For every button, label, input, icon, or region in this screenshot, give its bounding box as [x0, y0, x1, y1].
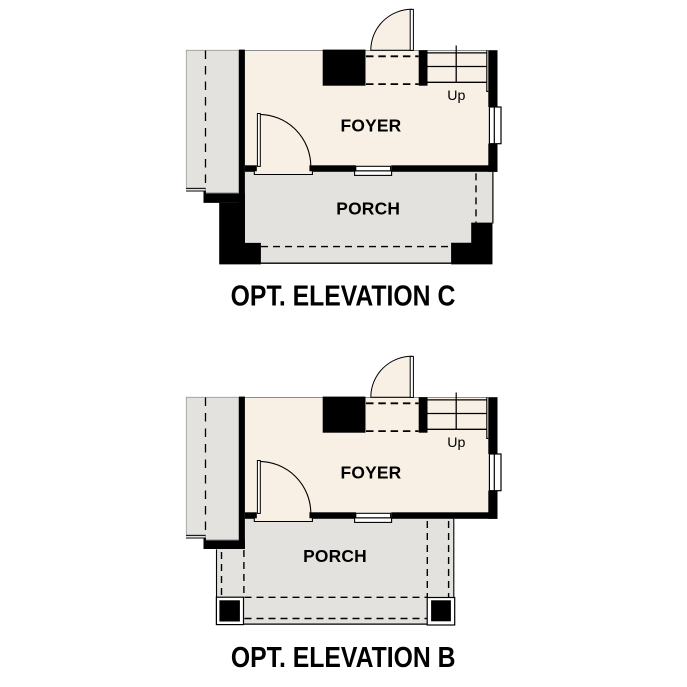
svg-text:Up: Up [447, 435, 465, 451]
svg-text:FOYER: FOYER [341, 116, 402, 136]
svg-text:Up: Up [447, 88, 465, 104]
svg-text:OPT. ELEVATION B: OPT. ELEVATION B [231, 641, 456, 673]
svg-text:PORCH: PORCH [336, 199, 400, 219]
svg-text:FOYER: FOYER [341, 463, 402, 483]
svg-text:PORCH: PORCH [303, 546, 367, 566]
svg-text:OPT. ELEVATION C: OPT. ELEVATION C [231, 280, 456, 312]
